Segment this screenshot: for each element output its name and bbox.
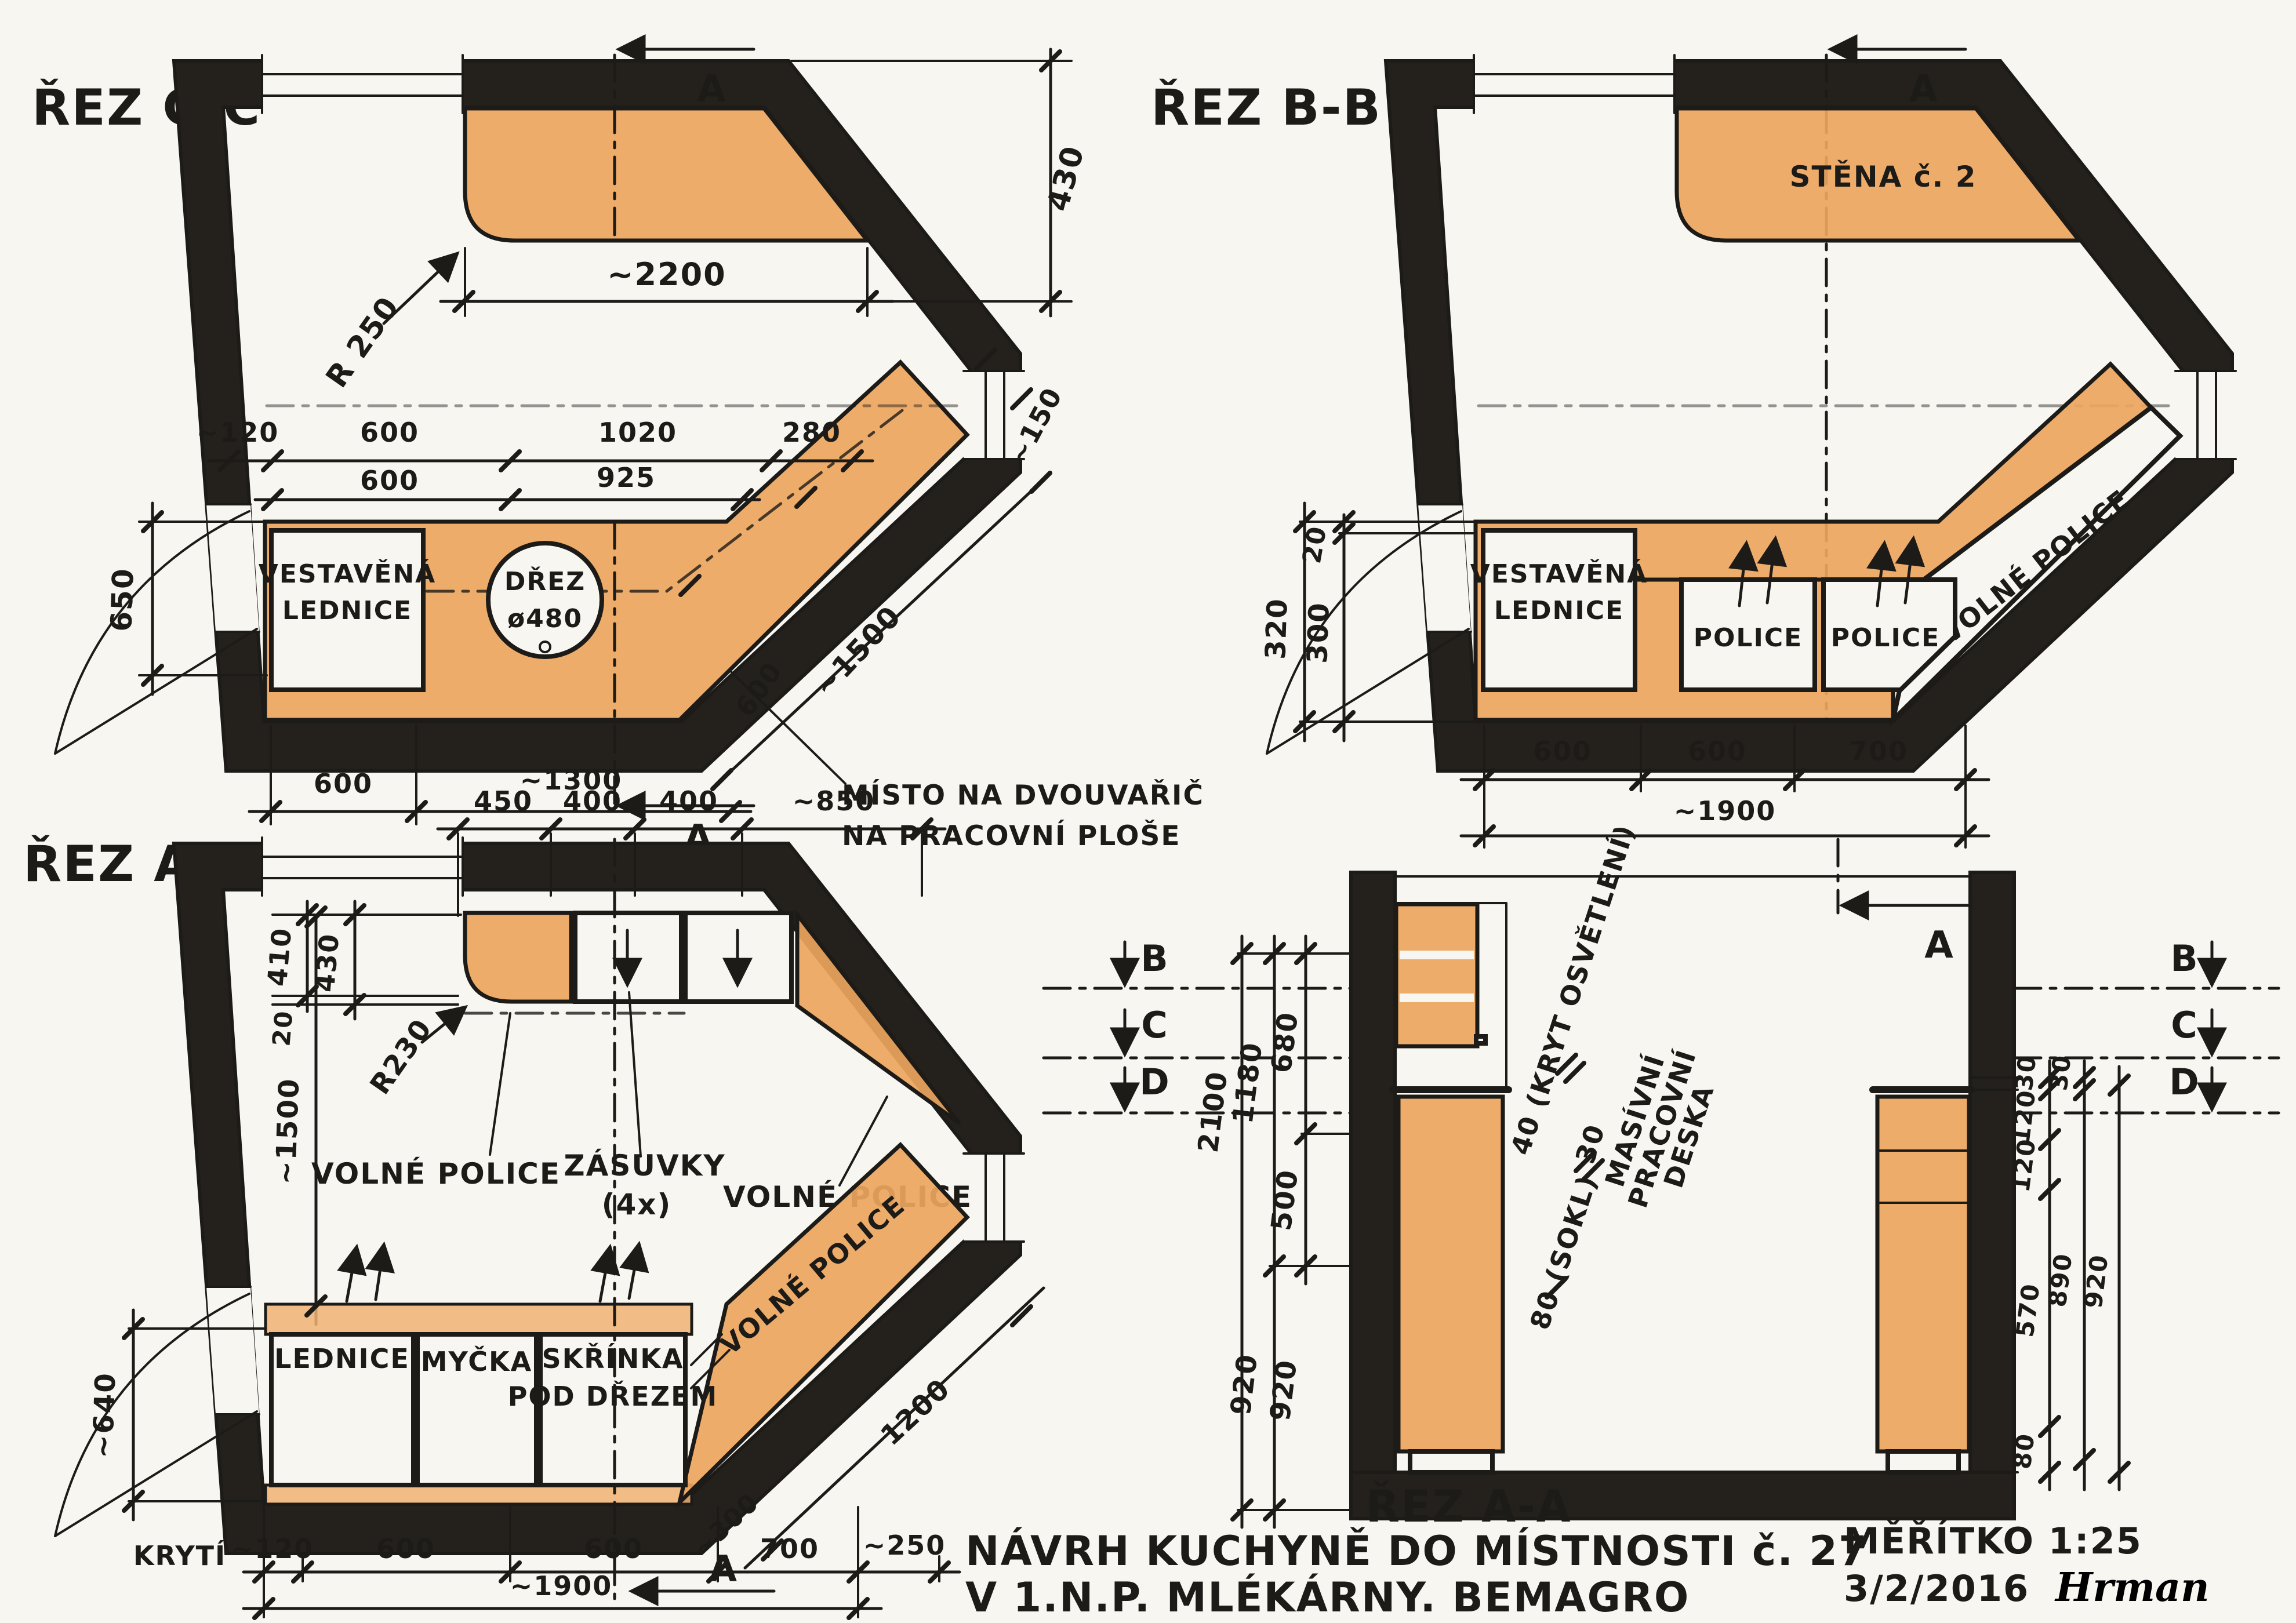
dim-2200: ~2200 xyxy=(607,256,726,293)
window-right xyxy=(2175,371,2236,459)
up-arrow-icon xyxy=(629,1244,639,1298)
drawers-label-2: (4x) xyxy=(602,1188,672,1221)
dim-30b: 30 xyxy=(2044,1053,2076,1092)
dim-920a: 920 xyxy=(1225,1352,1265,1417)
window-right xyxy=(964,1153,1024,1242)
fridge-label: LEDNICE xyxy=(274,1343,410,1374)
sink-diameter: ø480 xyxy=(507,604,583,634)
dim-20: 20 xyxy=(267,1009,298,1047)
dim-570: 570 xyxy=(2011,1282,2046,1339)
dim-500: 500 xyxy=(1265,1167,1305,1232)
dim-2100: 2100 xyxy=(1192,1069,1234,1154)
drawing-sheet: ŘEZ C-C VESTAVĚNÁ LEDNICE DŘEZ ø480 A xyxy=(0,0,2296,1623)
dim-600b: 600 xyxy=(360,465,419,496)
fridge-label-2: LEDNICE xyxy=(282,596,412,625)
section-label: ŘEZ A-A xyxy=(1365,1480,1571,1532)
marker-c-right: C xyxy=(2171,1004,2199,1046)
dim-450: 450 xyxy=(474,785,533,817)
cabinet-knob-icon xyxy=(1476,1036,1485,1043)
dim-920b: 920 xyxy=(1264,1358,1304,1422)
ext-left xyxy=(273,915,461,1005)
dim-925: 925 xyxy=(597,462,656,493)
door-gap xyxy=(1418,504,1471,632)
note-line1: MÍSTO NA DVOUVAŘIČ xyxy=(842,780,1204,811)
window-top xyxy=(1474,55,1674,113)
plinth-strip xyxy=(266,1485,692,1504)
dim-430: 430 xyxy=(1041,142,1092,215)
dim-320: 320 xyxy=(1259,597,1294,660)
door-gap xyxy=(206,1287,259,1414)
scale-label: MĚŘÍTKO 1:25 xyxy=(1844,1520,2142,1562)
date-label: 3/2/2016 xyxy=(1844,1567,2029,1610)
dim-r230: R230 xyxy=(364,1013,438,1100)
dim-120a: 120 xyxy=(2007,1088,2041,1145)
dim-300: 300 xyxy=(1301,601,1336,664)
dim-600b: 600 xyxy=(1688,736,1747,767)
leader-free-shelves-left xyxy=(490,1013,510,1155)
plan-cc: ŘEZ C-C VESTAVĚNÁ LEDNICE DŘEZ ø480 A xyxy=(32,49,1204,860)
section-a-letter: A xyxy=(1924,924,1954,967)
dim-20: 20 xyxy=(1297,523,1333,566)
dim-410: 410 xyxy=(261,926,298,987)
dim-700: 700 xyxy=(1849,736,1908,767)
door-gap xyxy=(206,504,259,632)
leader-drawers xyxy=(629,992,641,1156)
dim-1200: 1200 xyxy=(874,1373,957,1453)
dim-600-bottom: 600 xyxy=(314,768,373,799)
dim-80: 80 xyxy=(2007,1431,2040,1471)
dim-400b: 400 xyxy=(659,785,718,817)
sink-label: DŘEZ xyxy=(504,566,586,596)
dim-430: 430 xyxy=(309,931,346,993)
fridge-label-1: VESTAVĚNÁ xyxy=(1470,558,1648,589)
dim-650: 650 xyxy=(104,567,140,632)
wall-left xyxy=(1351,872,1395,1519)
plan-aa: ŘEZ A-A 450 400 400 ~850 410 430 20 R2 xyxy=(23,785,1044,1618)
plan-bb: ŘEZ B-B A STĚNA č. 2 VOLNÉ POLICE VESTAV… xyxy=(1151,49,2236,847)
dim-30a: 30 xyxy=(2009,1053,2041,1092)
window-top xyxy=(262,838,463,896)
sink-cab-label-2: POD DŘEZEM xyxy=(508,1381,718,1412)
dim-600a: 600 xyxy=(376,1533,435,1564)
sink-cab-label-1: SKŘÍNKA xyxy=(542,1343,684,1374)
section-a-letter-top: A xyxy=(697,68,727,111)
title-line2: V 1.N.P. MLÉKÁRNY. BEMAGRO xyxy=(965,1574,1690,1621)
wall-cab-corner-shelves xyxy=(797,915,960,1123)
dim-680: 680 xyxy=(1265,1010,1305,1075)
signature: Hrman xyxy=(2054,1564,2210,1611)
dim-r250: R 250 xyxy=(319,290,407,394)
kitchen-plan-drawing: ŘEZ C-C VESTAVĚNÁ LEDNICE DŘEZ ø480 A xyxy=(0,0,2296,1623)
dim-1020: 1020 xyxy=(598,417,677,448)
dim-120b: 120 xyxy=(2007,1137,2041,1194)
up-arrow-icon xyxy=(600,1247,610,1301)
plinth-left xyxy=(1410,1451,1492,1472)
dim-280: 280 xyxy=(782,417,841,448)
note-80: 80 (SOKL) xyxy=(1524,1171,1603,1333)
shelf-slot xyxy=(1400,951,1474,959)
dim-600b: 600 xyxy=(584,1533,643,1564)
section-a-letter-top: A xyxy=(1909,68,1939,111)
sink-circle xyxy=(488,543,602,657)
marker-c: C xyxy=(1141,1004,1169,1046)
dim-700: 700 xyxy=(760,1533,819,1564)
shelf-label-2: POLICE xyxy=(1831,623,1940,653)
dishwasher-label: MYČKA xyxy=(421,1346,532,1377)
dim-920c: 920 xyxy=(2079,1253,2114,1310)
marker-d: D xyxy=(1139,1061,1170,1103)
title-line1: NÁVRH KUCHYNĚ DO MÍSTNOSTI č. 27 xyxy=(965,1527,1868,1575)
fridge-label-2: LEDNICE xyxy=(1494,596,1624,625)
drawers-label-1: ZÁSUVKY xyxy=(564,1148,725,1182)
wall-note: STĚNA č. 2 xyxy=(1789,159,1977,194)
shelf-slot xyxy=(1400,994,1474,1002)
note-line2: NA PRACOVNÍ PLOŠE xyxy=(842,820,1180,852)
dim-1900: ~1900 xyxy=(510,1570,613,1602)
note-40: 40 (KRYT OSVĚTLENÍ) xyxy=(1505,820,1641,1159)
free-shelves-left: VOLNÉ POLICE xyxy=(311,1156,561,1191)
up-arrow-icon xyxy=(376,1245,384,1300)
dim-120: ~120 xyxy=(197,417,279,448)
dim-400a: 400 xyxy=(563,785,622,817)
section-aa: A B C D B C xyxy=(1044,820,2279,1532)
counter-strip xyxy=(266,1304,692,1334)
wall-cab-shelves xyxy=(465,913,571,1002)
cover-label: KRYTÍ xyxy=(133,1540,226,1571)
marker-b-right: B xyxy=(2170,937,2199,980)
plinth-right xyxy=(1888,1451,1959,1472)
base-cabinet-left xyxy=(1398,1097,1503,1451)
fridge-label-1: VESTAVĚNÁ xyxy=(259,558,436,589)
dim-1500: ~1500 xyxy=(270,1078,306,1185)
marker-b: B xyxy=(1140,937,1169,980)
window-top xyxy=(262,55,463,113)
wall-right xyxy=(1970,872,2014,1519)
dim-250: ~250 xyxy=(863,1530,946,1561)
dim-600a: 600 xyxy=(360,417,419,448)
dim-640: ~640 xyxy=(86,1371,122,1458)
dim-890: 890 xyxy=(2043,1251,2078,1309)
dim-600a: 600 xyxy=(1533,736,1592,767)
dim-120: ~120 xyxy=(231,1533,314,1564)
plan-bb-label: ŘEZ B-B xyxy=(1151,78,1382,137)
marker-d-right: D xyxy=(2169,1061,2200,1103)
dim-1900: ~1900 xyxy=(1674,795,1777,827)
up-arrow-icon xyxy=(347,1247,357,1301)
dim-850: ~850 xyxy=(793,785,875,817)
wall-cabinet xyxy=(1396,904,1477,1046)
shelf-label-1: POLICE xyxy=(1694,623,1803,653)
titleblock: NÁVRH KUCHYNĚ DO MÍSTNOSTI č. 27 V 1.N.P… xyxy=(965,1520,2210,1621)
